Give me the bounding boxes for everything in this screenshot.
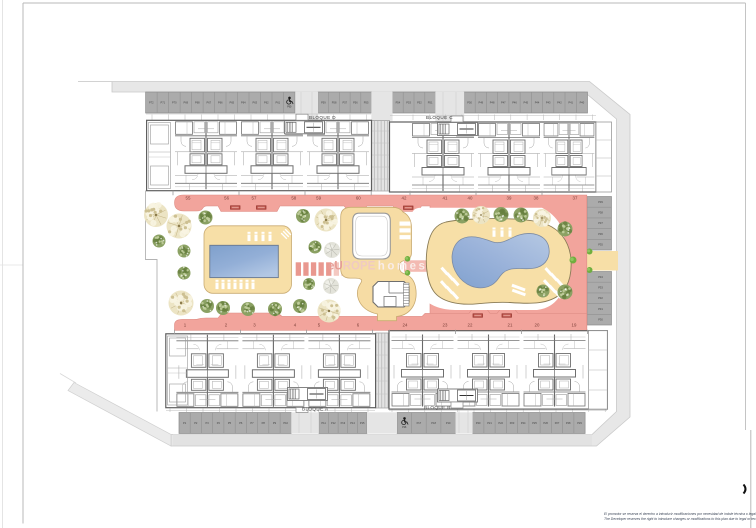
svg-text:P17: P17 (417, 421, 422, 425)
svg-text:39: 39 (507, 196, 512, 201)
svg-text:P13: P13 (341, 421, 346, 425)
svg-text:P5: P5 (228, 421, 232, 425)
svg-text:P24: P24 (521, 421, 526, 425)
svg-text:El promotor se reserva el dere: El promotor se reserva el derecho a intr… (604, 512, 756, 516)
svg-text:P28: P28 (566, 421, 571, 425)
svg-text:P55: P55 (364, 101, 369, 105)
svg-text:P54: P54 (396, 101, 401, 105)
svg-text:P18: P18 (431, 421, 436, 425)
svg-text:P53: P53 (406, 101, 411, 105)
svg-text:P62: P62 (264, 101, 269, 105)
svg-text:BLOQUE A: BLOQUE A (302, 407, 329, 412)
svg-text:P71: P71 (160, 101, 165, 105)
svg-text:P6: P6 (239, 421, 243, 425)
svg-text:59: 59 (316, 196, 321, 201)
svg-text:P22: P22 (498, 421, 503, 425)
svg-text:P58: P58 (332, 101, 337, 105)
svg-text:20: 20 (535, 322, 540, 327)
svg-text:60: 60 (356, 196, 361, 201)
svg-text:21: 21 (508, 322, 513, 327)
svg-text:P45: P45 (523, 101, 528, 105)
svg-text:58: 58 (291, 196, 296, 201)
svg-text:P61: P61 (275, 101, 280, 105)
svg-text:P47: P47 (501, 101, 506, 105)
svg-text:P27: P27 (555, 421, 560, 425)
svg-text:23: 23 (443, 322, 448, 327)
svg-text:P21: P21 (487, 421, 492, 425)
svg-text:P14: P14 (350, 421, 355, 425)
svg-text:BLOQUE C: BLOQUE C (426, 115, 453, 120)
svg-text:P52: P52 (417, 101, 422, 105)
svg-text:P70: P70 (172, 101, 177, 105)
svg-text:24: 24 (403, 322, 408, 327)
svg-text:42: 42 (402, 196, 407, 201)
svg-text:P59: P59 (321, 101, 326, 105)
svg-text:P19: P19 (446, 421, 451, 425)
svg-text:P15: P15 (360, 421, 365, 425)
svg-text:P34: P34 (598, 275, 603, 279)
svg-text:The Developer reserves the rig: The Developer reserves the right to intr… (604, 517, 756, 521)
svg-text:55: 55 (186, 196, 191, 201)
svg-text:P25: P25 (532, 421, 537, 425)
svg-text:P65: P65 (229, 101, 234, 105)
svg-text:P51: P51 (428, 101, 433, 105)
svg-text:P72: P72 (149, 101, 154, 105)
svg-text:P29: P29 (577, 421, 582, 425)
svg-text:P30: P30 (598, 318, 603, 322)
svg-text:P39: P39 (598, 200, 603, 204)
svg-text:P31: P31 (598, 307, 603, 311)
svg-text:P63: P63 (252, 101, 257, 105)
svg-text:P50: P50 (467, 101, 472, 105)
svg-text:P37: P37 (598, 221, 603, 225)
svg-text:P20: P20 (476, 421, 481, 425)
svg-text:41: 41 (443, 196, 448, 201)
svg-text:P11: P11 (321, 421, 326, 425)
svg-text:P33: P33 (598, 286, 603, 290)
svg-text:P3: P3 (206, 421, 210, 425)
svg-text:37: 37 (573, 196, 578, 201)
svg-text:P57: P57 (342, 101, 347, 105)
svg-text:P43: P43 (546, 101, 551, 105)
svg-text:P8: P8 (262, 421, 266, 425)
svg-text:P66: P66 (218, 101, 223, 105)
svg-text:P64: P64 (241, 101, 246, 105)
svg-text:P9: P9 (273, 421, 277, 425)
svg-text:BLOQUE B: BLOQUE B (424, 405, 451, 410)
svg-text:P40: P40 (580, 101, 585, 105)
svg-text:P7: P7 (250, 421, 254, 425)
svg-text:P48: P48 (490, 101, 495, 105)
svg-text:P4: P4 (217, 421, 221, 425)
svg-text:P1: P1 (183, 421, 187, 425)
svg-text:56: 56 (224, 196, 229, 201)
svg-text:38: 38 (534, 196, 539, 201)
svg-text:P44: P44 (535, 101, 540, 105)
svg-text:P42: P42 (557, 101, 562, 105)
svg-text:P67: P67 (206, 101, 211, 105)
svg-text:P38: P38 (598, 211, 603, 215)
svg-text:P68: P68 (195, 101, 200, 105)
svg-text:BLOQUE D: BLOQUE D (309, 115, 336, 120)
svg-text:P32: P32 (598, 296, 603, 300)
svg-text:19: 19 (572, 322, 577, 327)
svg-text:P69: P69 (183, 101, 188, 105)
svg-text:P12: P12 (331, 421, 336, 425)
svg-text:P26: P26 (543, 421, 548, 425)
svg-text:P35: P35 (598, 243, 603, 247)
svg-text:P56: P56 (353, 101, 358, 105)
svg-text:40: 40 (468, 196, 473, 201)
svg-text:P23: P23 (510, 421, 515, 425)
svg-text:P16: P16 (402, 427, 407, 429)
svg-text:P2: P2 (194, 421, 198, 425)
svg-text:P10: P10 (283, 421, 288, 425)
svg-text:P60: P60 (287, 106, 292, 108)
svg-text:P49: P49 (478, 101, 483, 105)
svg-text:P46: P46 (512, 101, 517, 105)
svg-text:P41: P41 (568, 101, 573, 105)
svg-text:57: 57 (252, 196, 257, 201)
svg-text:22: 22 (468, 322, 473, 327)
svg-text:P36: P36 (598, 232, 603, 236)
